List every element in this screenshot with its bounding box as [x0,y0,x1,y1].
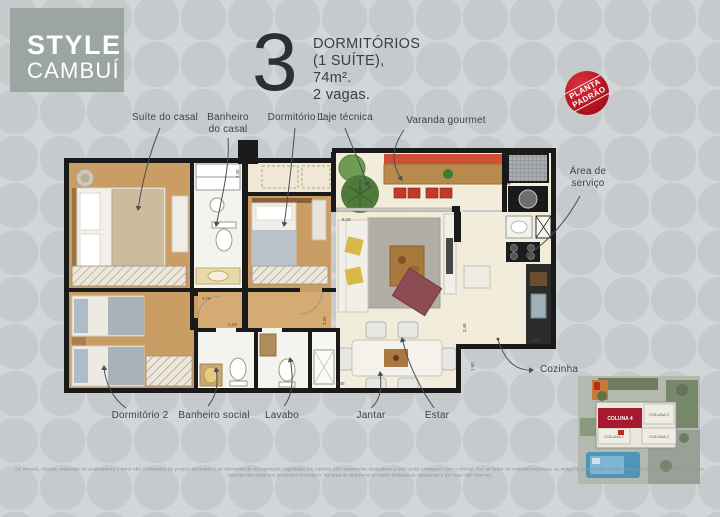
toilet-tank [212,222,236,228]
dim: 1.80 [470,362,475,371]
dim: 3.20 [322,316,327,325]
vanity [260,334,276,356]
kitchen-cart [464,266,490,288]
unit-summary-line4: 2 vagas. [313,87,420,104]
toilet-tank [279,382,295,387]
dim: 0.70 [354,187,363,192]
stove [506,242,540,262]
stamp-text: PLANTA PADRÃO [564,74,610,112]
site-coluna2: COLUNA 2 [649,434,670,439]
dim: 2.38 [235,169,240,178]
sink [204,367,218,383]
site-coluna1: COLUNA 1 [604,434,625,439]
dim: 2.00 [530,338,539,343]
suite-wardrobe [72,266,186,286]
blanket [108,297,144,335]
unit-summary-line2: (1 SUÍTE), [313,53,420,70]
pillow [256,206,292,220]
service-area-fixtures [506,154,551,238]
desk [312,200,326,240]
blanket [112,189,164,273]
floor-plan: 3.75 0.70 5.18 3.48 1.80 4.45 2.00 3.20 … [63,138,561,400]
floor-plan-page: STYLE CAMBUÍ 3 DORMITÓRIOS (1 SUÍTE), 74… [0,0,720,517]
dim: 3.75 [202,296,211,301]
sink [210,198,224,212]
logo-style-cambui: STYLE CAMBUÍ [10,8,124,92]
legal-disclaimer: Os móveis, objetos, materiais de acabame… [15,466,705,478]
label-dormitorio2: Dormitório 2 [112,410,169,421]
dim: 5.18 [342,217,351,222]
kitchen-sink [531,294,546,318]
site-coluna4: COLUNA 4 [607,416,633,422]
label-lavabo: Lavabo [265,410,299,421]
unit-summary-line3: 74m². [313,70,420,87]
toilet [216,229,232,251]
bed-headboard [72,188,77,274]
label-jantar: Jantar [357,410,386,421]
entry-hall [314,350,334,384]
logo-line1: STYLE [27,30,122,61]
nightstand [72,337,86,346]
label-varanda-gourmet: Varanda gourmet [406,115,486,126]
pillow [80,193,100,230]
pillow [74,349,88,383]
label-cozinha: Cozinha [540,364,578,375]
cutting-board [530,272,547,286]
dim: 1.23 [228,322,237,327]
label-estar: Estar [425,410,449,421]
site-coluna3: COLUNA 3 [649,412,670,417]
blanket [252,230,296,265]
vent-grille [508,154,548,182]
counter-plant [443,169,453,179]
label-suite: Suíte do casal [132,112,198,123]
bed-headboard [252,198,312,203]
pillow [74,299,88,333]
unit-summary: DORMITÓRIOS (1 SUÍTE), 74m². 2 vagas. [313,36,420,104]
label-banheiro-casal-2: do casal [209,124,248,135]
planta-padrao-stamp: PLANTA PADRÃO [565,71,609,115]
dim: 3.48 [462,323,467,332]
logo-line2: CAMBUÍ [27,58,120,84]
dim: 4.45 [336,381,345,386]
toilet [279,359,295,381]
label-banheiro-casal-1: Banheiro [207,112,249,123]
label-dormitorio1: Dormitório 1 [268,112,325,123]
label-banheiro-social: Banheiro social [178,410,249,421]
blanket [108,347,144,385]
dorm1-wardrobe [252,266,328,284]
sofa [338,220,368,312]
toilet-tank [230,381,247,386]
toilet [230,358,246,380]
label-area-servico-2: serviço [571,178,604,189]
unit-bedroom-count: 3 [252,22,298,104]
sliding-glass-door [336,208,452,211]
yellow-cushion [345,267,364,286]
pillow [80,234,100,271]
label-laje-tecnica: Laje técnica [317,112,373,123]
washing-machine [519,190,537,208]
dresser [172,196,188,252]
living-furniture [338,214,456,316]
unit-summary-line1: DORMITÓRIOS [313,36,420,53]
dorm2-wardrobe [146,356,192,386]
tv [446,238,453,274]
label-area-servico-1: Área de [570,166,606,177]
bar-backrest [384,154,510,164]
